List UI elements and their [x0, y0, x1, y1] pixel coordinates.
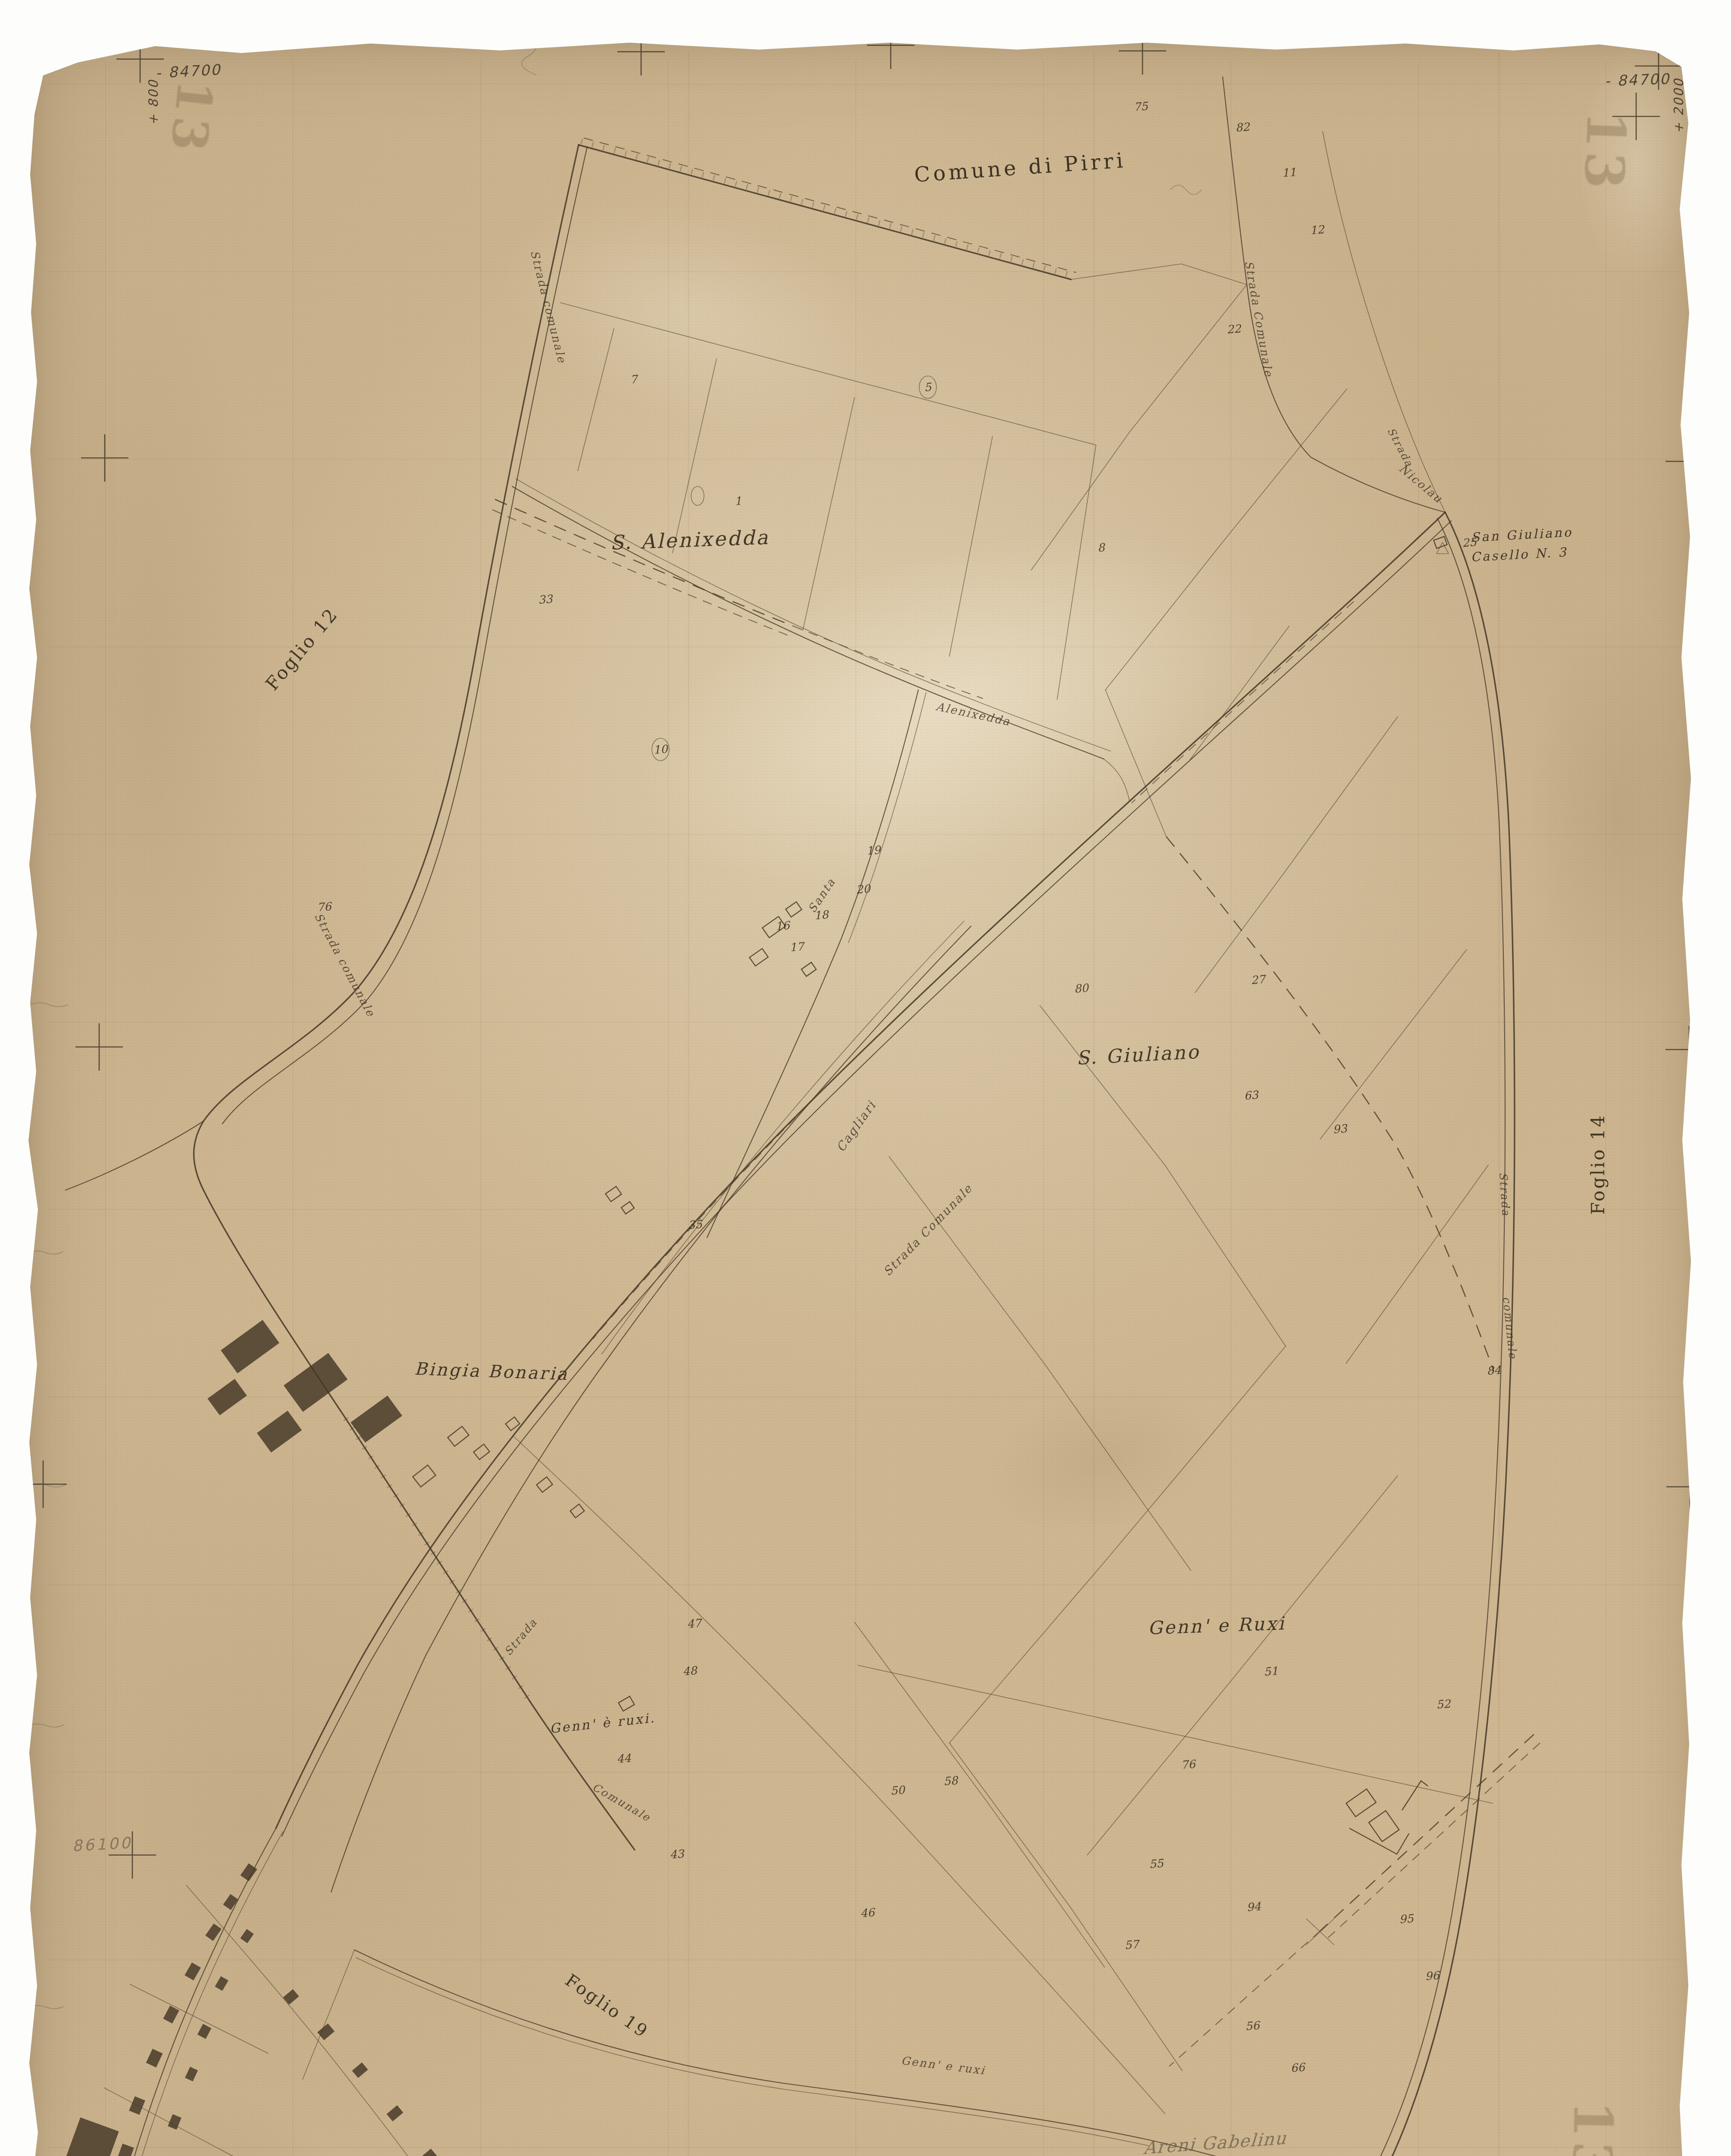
coord-top-left: - 84700 — [155, 61, 222, 81]
paper-texture-layer — [0, 0, 1731, 2156]
label-foglio-12: Foglio 12 — [261, 604, 342, 695]
parcel-number: 16 — [775, 919, 790, 933]
map-chrome-layer: Comune di Pirri Cagliari F.°13 Scala di … — [0, 0, 1731, 2156]
parcel-number: 44 — [616, 1752, 631, 1765]
road-label: Strada comunale — [312, 911, 378, 1019]
parcel-number: 47 — [686, 1617, 701, 1630]
parcel-number: 55 — [1149, 1857, 1164, 1871]
parcel-number: 63 — [1243, 1088, 1258, 1102]
handwritten-line: Via Felis 2 3 P. — [1141, 2151, 1286, 2156]
parcel-number: 27 — [1250, 973, 1265, 987]
label-genn-e-ruxi-small: Genn' è ruxi. — [549, 1710, 656, 1736]
parcel-number: 96 — [1424, 1969, 1440, 1983]
registration-cross — [81, 434, 128, 482]
road-label: Cagliari — [833, 1098, 879, 1154]
parcel-number: 17 — [789, 940, 804, 954]
parcel-number: 51 — [1263, 1664, 1278, 1678]
label-casello-n3: Casello N. 3 — [1471, 545, 1568, 564]
registration-cross — [1119, 27, 1166, 75]
registration-cross — [1665, 1026, 1713, 1073]
map-linework — [0, 0, 1731, 2156]
road-label: Alenixedda — [935, 700, 1012, 728]
registration-cross — [75, 1023, 123, 1071]
coord-top-left-vertical: + 800 — [146, 79, 161, 125]
parcel-number: 18 — [814, 908, 829, 922]
map-label-layer: - 84700+ 800- 84700+ 2000- 86500+ 800- 8… — [0, 0, 1731, 2156]
parcel-number: 76 — [316, 900, 332, 914]
parcel-number: 8 — [1097, 541, 1105, 554]
registration-cross — [19, 1460, 67, 1508]
label-foglio-19: Foglio 19 — [562, 1970, 652, 2042]
parcel-number: 19 — [866, 843, 881, 857]
parcel-number: 25 — [1462, 536, 1477, 549]
registration-cross — [617, 28, 665, 75]
parcel-number: 57 — [1124, 1938, 1139, 1952]
map-paper-sheet: - 84700+ 800- 84700+ 2000- 86500+ 800- 8… — [26, 37, 1701, 2156]
road-label: comunale — [1500, 1296, 1519, 1360]
coord-top-right: - 84700 — [1604, 70, 1671, 89]
sheet-number-stamp: 13 — [160, 78, 224, 157]
parcel-number: 58 — [943, 1774, 958, 1788]
registration-cross — [1612, 93, 1660, 140]
sheet-number-stamp: 13 — [1561, 2100, 1625, 2156]
label-s-giuliano: S. Giuliano — [1076, 1040, 1201, 1069]
parcel-number: 33 — [538, 592, 553, 606]
municipality-label: Comune di Pirri — [914, 148, 1127, 187]
coord-top-right-vertical: + 2000 — [1671, 78, 1686, 133]
parcel-number: 50 — [890, 1783, 905, 1797]
parcel-number: 35 — [687, 1218, 702, 1232]
road-label: Strada Comunale — [1242, 260, 1275, 379]
scanned-cadastral-map: { "sheet": { "municipality_note": "Comun… — [0, 0, 1731, 2156]
parcel-number: 46 — [860, 1906, 875, 1920]
handwritten-line: Areni Gabelinu — [1143, 2125, 1288, 2156]
road-label: Strada — [502, 1616, 540, 1658]
parcel-number: 7 — [630, 373, 638, 386]
parcel-number: 95 — [1399, 1912, 1414, 1926]
parcel-number: 93 — [1332, 1122, 1347, 1136]
road-label: Strada comunale — [528, 249, 569, 365]
parcel-number: 12 — [1309, 223, 1324, 237]
parcel-number: 82 — [1235, 120, 1250, 134]
parcel-number: 20 — [855, 882, 870, 896]
parcel-number: 84 — [1486, 1363, 1501, 1377]
label-foglio-14: Foglio 14 — [1587, 1114, 1609, 1215]
road-label: Strada — [1497, 1172, 1512, 1217]
road-label: Santa — [805, 875, 838, 915]
parcel-number: 1 — [734, 494, 742, 508]
parcel-number: 10 — [653, 743, 668, 756]
pencil-coordinate: 86100 — [72, 1834, 132, 1855]
parcel-number: 22 — [1226, 322, 1241, 336]
road-label: Comunale — [590, 1780, 653, 1824]
registration-cross — [1665, 438, 1713, 485]
registration-cross — [1635, 42, 1682, 90]
road-label: Strada Comunale — [880, 1181, 975, 1278]
road-label: Strada — [1385, 426, 1415, 469]
handwritten-pencil-note: Areni Gabelinu Via Felis 2 3 P. Cagliari — [1139, 2125, 1288, 2156]
registration-cross — [109, 1831, 156, 1879]
registration-cross — [1666, 1463, 1714, 1510]
sheet-number-stamp: 13 — [1572, 110, 1637, 194]
parcel-number: 5 — [924, 380, 932, 394]
registration-cross — [116, 35, 164, 83]
parcel-number: 80 — [1074, 981, 1089, 995]
label-s-alenixedda: S. Alenixedda — [610, 526, 770, 555]
parcel-number: 48 — [682, 1664, 697, 1678]
label-bingia-bonaria: Bingia Bonaria — [414, 1359, 569, 1384]
road-label: Genn' e ruxi — [900, 2054, 986, 2077]
parcel-number: 66 — [1290, 2061, 1305, 2075]
parcel-number: 76 — [1180, 1758, 1196, 1771]
parcel-number: 11 — [1281, 166, 1296, 179]
parcel-number: 52 — [1436, 1697, 1451, 1711]
parcel-number: 94 — [1246, 1900, 1261, 1914]
parcel-number: 43 — [669, 1847, 684, 1861]
parcel-number: 56 — [1245, 2019, 1260, 2033]
parcel-number: 75 — [1133, 100, 1148, 113]
label-genn-e-ruxi: Genn' e Ruxi — [1148, 1613, 1286, 1639]
label-san-giuliano-casello: San Giuliano — [1471, 525, 1573, 545]
road-label: Nicolau — [1396, 462, 1445, 506]
registration-cross — [867, 22, 914, 69]
